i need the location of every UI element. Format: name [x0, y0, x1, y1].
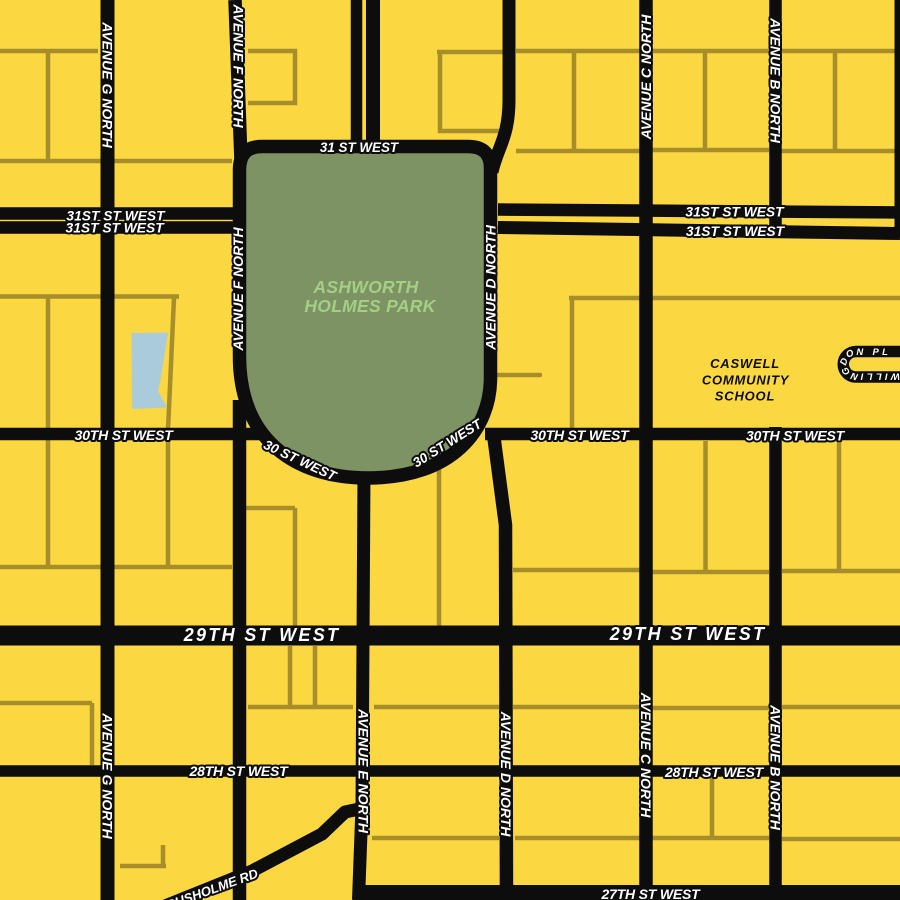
svg-text:ASHWORTH: ASHWORTH: [312, 277, 418, 297]
svg-text:AVENUE D NORTH: AVENUE D NORTH: [498, 711, 514, 838]
svg-text:AVENUE F NORTH: AVENUE F NORTH: [231, 3, 247, 128]
svg-text:29TH ST WEST: 29TH ST WEST: [609, 624, 767, 644]
svg-text:28TH ST WEST: 28TH ST WEST: [664, 764, 765, 780]
svg-text:SCHOOL: SCHOOL: [715, 389, 775, 404]
svg-text:AVENUE C NORTH: AVENUE C NORTH: [638, 14, 654, 141]
svg-text:AVENUE F NORTH: AVENUE F NORTH: [230, 227, 246, 352]
svg-text:AVENUE D NORTH: AVENUE D NORTH: [482, 224, 498, 351]
svg-text:30TH ST WEST: 30TH ST WEST: [75, 427, 175, 443]
svg-text:30TH ST WEST: 30TH ST WEST: [531, 427, 631, 443]
svg-text:27TH ST WEST: 27TH ST WEST: [601, 886, 702, 900]
svg-text:29TH ST WEST: 29TH ST WEST: [183, 625, 341, 645]
svg-text:28TH ST WEST: 28TH ST WEST: [189, 763, 290, 779]
svg-text:31ST ST WEST: 31ST ST WEST: [685, 204, 785, 219]
svg-text:AVENUE B NORTH: AVENUE B NORTH: [768, 704, 784, 831]
svg-text:AVENUE G NORTH: AVENUE G NORTH: [100, 712, 116, 839]
svg-text:AVENUE G NORTH: AVENUE G NORTH: [100, 21, 116, 148]
svg-text:30TH ST WEST: 30TH ST WEST: [746, 427, 846, 443]
svg-text:AVENUE E NORTH: AVENUE E NORTH: [356, 708, 372, 834]
svg-text:CASWELL: CASWELL: [710, 356, 780, 371]
svg-text:HOLMES PARK: HOLMES PARK: [304, 296, 436, 316]
svg-text:AVENUE C NORTH: AVENUE C NORTH: [638, 692, 654, 819]
svg-text:31ST ST WEST: 31ST ST WEST: [686, 224, 786, 239]
svg-text:COMMUNITY: COMMUNITY: [702, 373, 790, 388]
svg-text:31ST ST WEST: 31ST ST WEST: [66, 221, 166, 236]
svg-text:AVENUE B NORTH: AVENUE B NORTH: [768, 17, 784, 144]
svg-text:31 ST WEST: 31 ST WEST: [320, 140, 400, 155]
